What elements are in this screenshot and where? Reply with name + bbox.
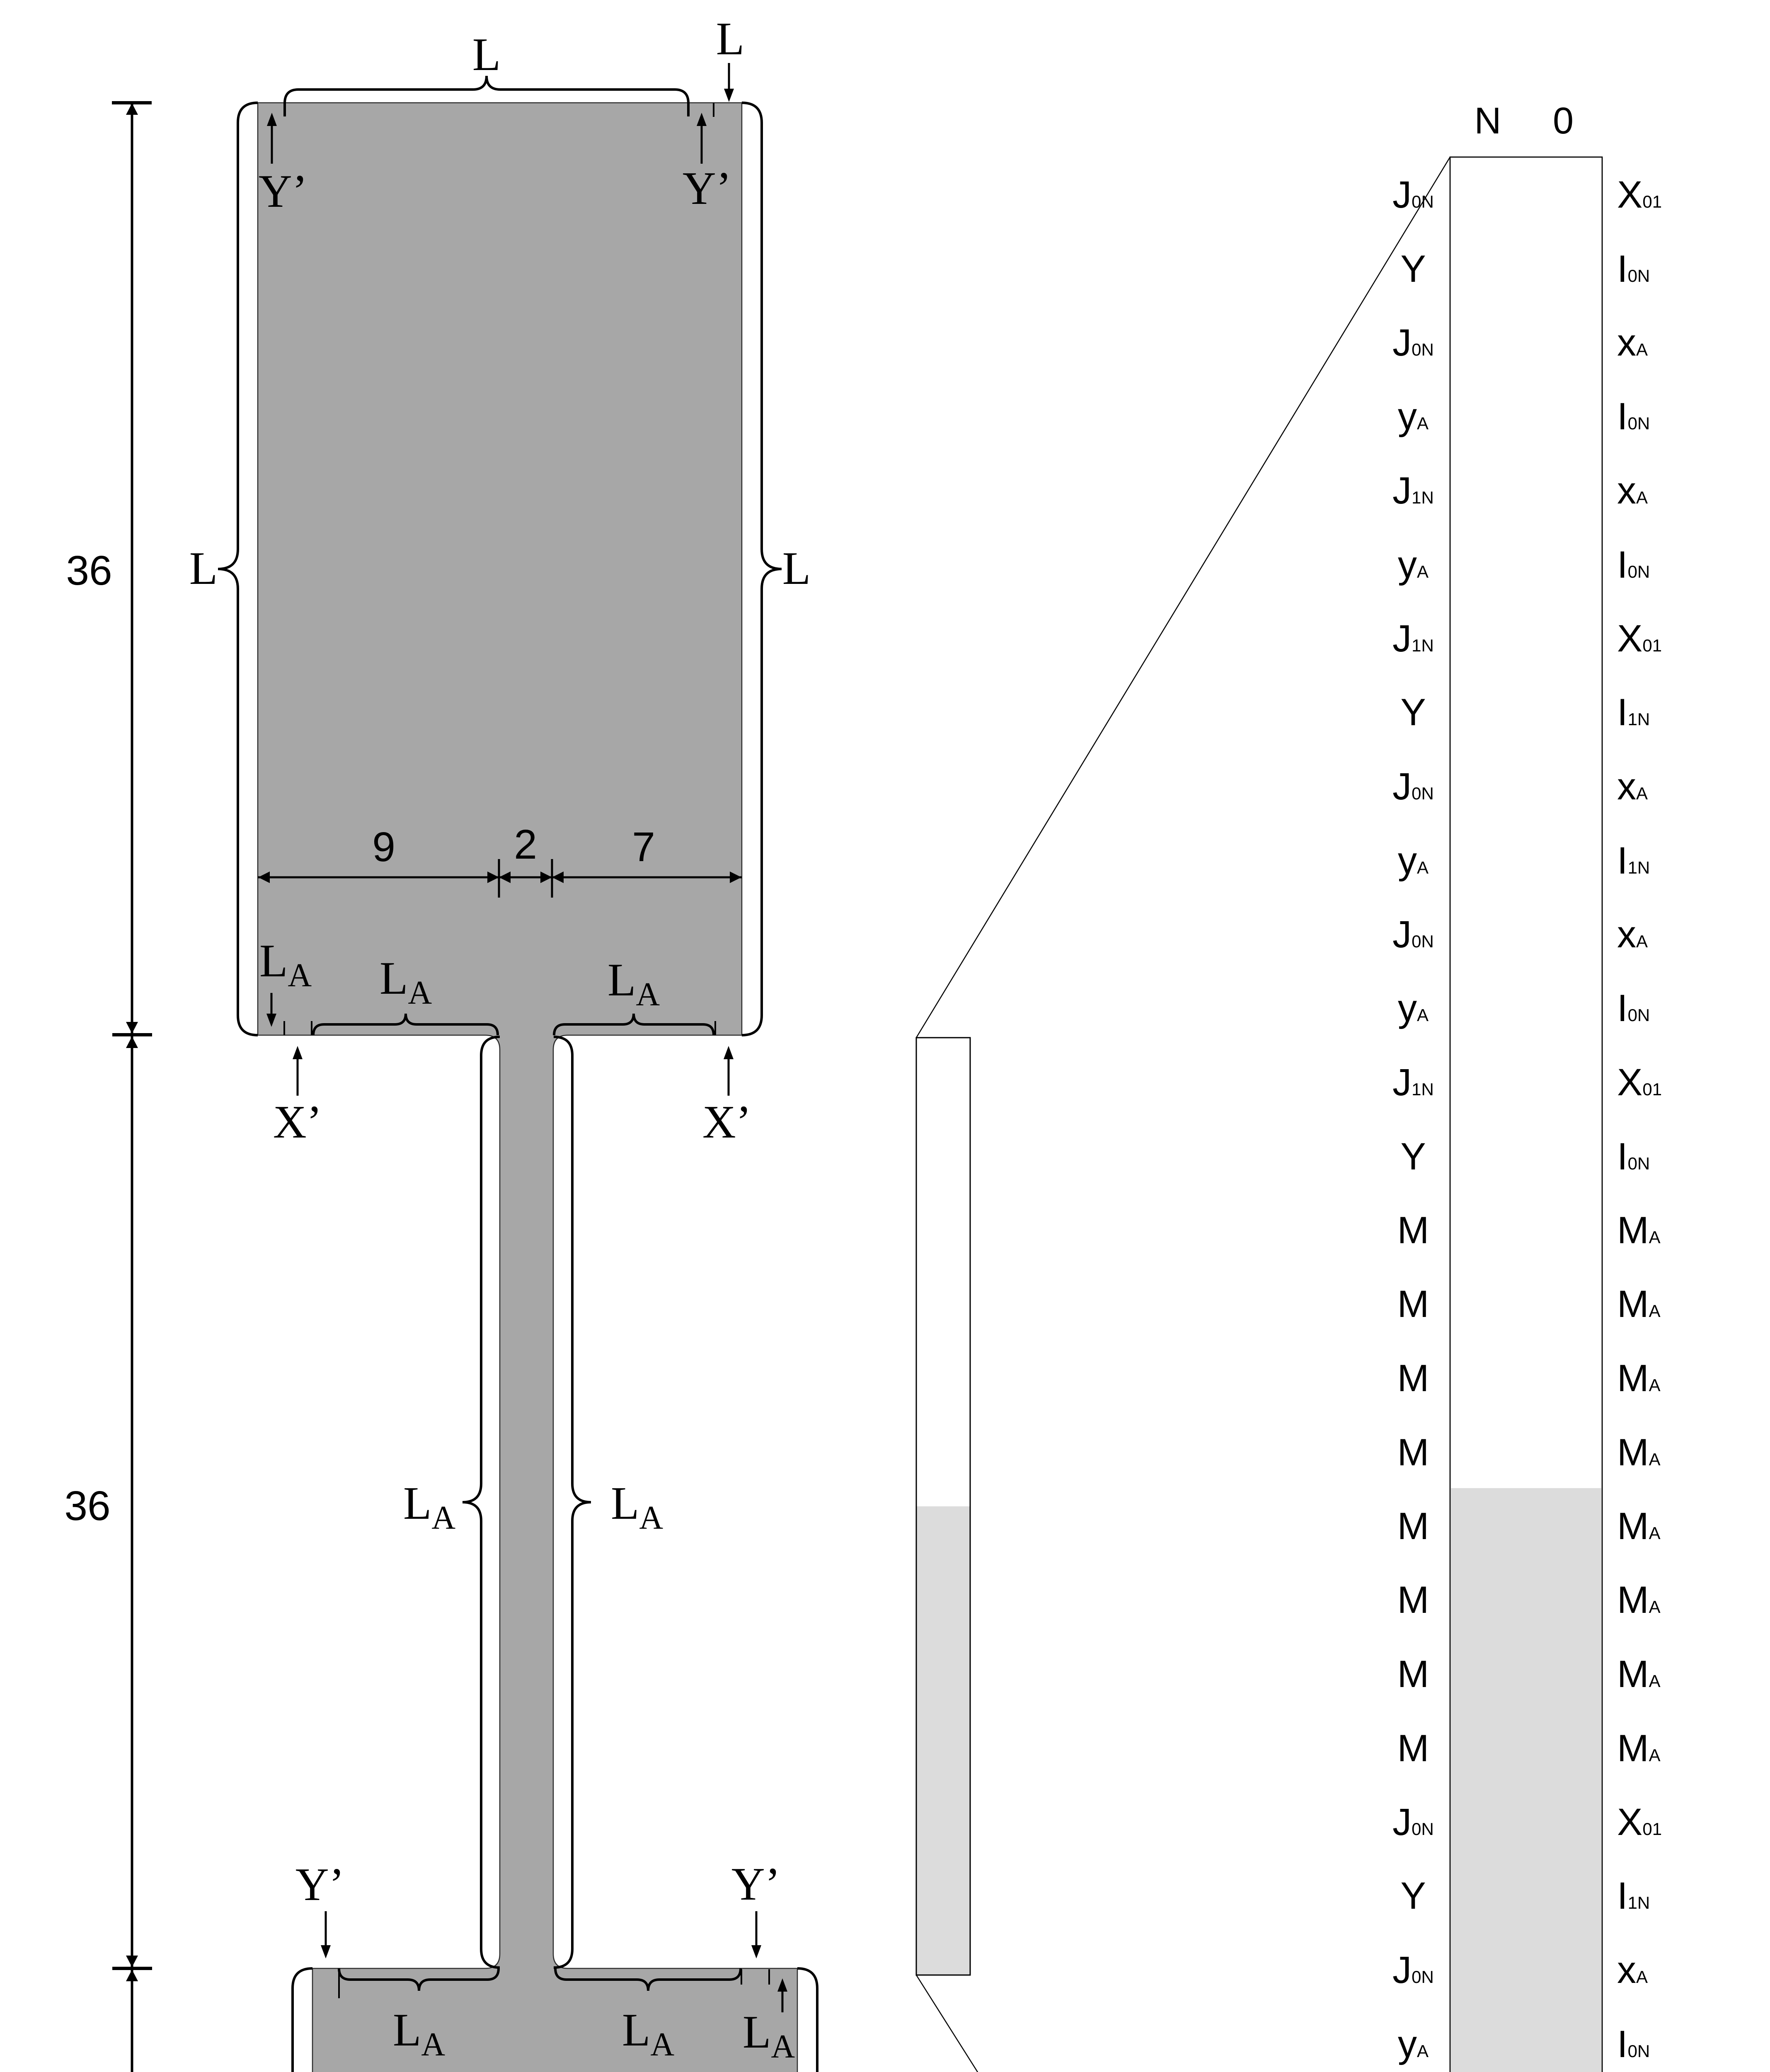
svg-text:I1N: I1N <box>1617 1875 1650 1917</box>
svg-text:J0N: J0N <box>1392 1949 1434 1991</box>
svg-text:Y’: Y’ <box>683 163 731 214</box>
svg-text:LA: LA <box>611 1478 663 1536</box>
svg-text:L: L <box>189 543 218 594</box>
svg-text:L: L <box>782 543 811 594</box>
svg-text:MA: MA <box>1617 1357 1661 1399</box>
svg-text:L: L <box>716 13 744 65</box>
svg-text:36: 36 <box>66 547 112 594</box>
svg-text:I0N: I0N <box>1617 2023 1650 2065</box>
svg-text:I0N: I0N <box>1617 1135 1650 1178</box>
svg-text:Y: Y <box>1400 1875 1426 1917</box>
svg-text:9: 9 <box>372 824 395 870</box>
svg-text:MA: MA <box>1617 1209 1661 1251</box>
svg-text:yA: yA <box>1398 2023 1429 2065</box>
svg-text:N: N <box>1475 100 1501 142</box>
svg-text:X01: X01 <box>1617 617 1662 660</box>
svg-text:36: 36 <box>64 1483 110 1529</box>
svg-text:MA: MA <box>1617 1283 1661 1325</box>
svg-text:MA: MA <box>1617 1653 1661 1695</box>
svg-text:Y’: Y’ <box>731 1859 780 1910</box>
svg-text:I0N: I0N <box>1617 987 1650 1029</box>
svg-text:yA: yA <box>1398 395 1429 438</box>
svg-text:J0N: J0N <box>1392 765 1434 808</box>
svg-text:X01: X01 <box>1617 1801 1662 1843</box>
svg-text:M: M <box>1397 1653 1429 1695</box>
svg-text:M: M <box>1397 1727 1429 1769</box>
svg-text:xA: xA <box>1617 322 1648 364</box>
svg-text:xA: xA <box>1617 470 1648 512</box>
svg-text:I1N: I1N <box>1617 691 1650 733</box>
svg-text:I0N: I0N <box>1617 248 1650 290</box>
svg-text:MA: MA <box>1617 1579 1661 1621</box>
svg-text:J1N: J1N <box>1392 1061 1434 1104</box>
svg-text:X01: X01 <box>1617 1061 1662 1104</box>
svg-text:Y’: Y’ <box>295 1859 344 1910</box>
svg-text:M: M <box>1397 1209 1429 1251</box>
svg-text:J0N: J0N <box>1392 322 1434 364</box>
svg-text:yA: yA <box>1398 544 1429 586</box>
svg-text:Y’: Y’ <box>259 166 308 217</box>
svg-text:LA: LA <box>403 1478 455 1536</box>
svg-text:X’: X’ <box>702 1097 751 1148</box>
svg-text:M: M <box>1397 1357 1429 1399</box>
svg-text:I1N: I1N <box>1617 840 1650 882</box>
svg-text:I0N: I0N <box>1617 395 1650 438</box>
svg-text:M: M <box>1397 1431 1429 1474</box>
svg-text:yA: yA <box>1398 840 1429 882</box>
svg-text:X01: X01 <box>1617 174 1662 216</box>
svg-text:I0N: I0N <box>1617 544 1650 586</box>
svg-text:2: 2 <box>514 821 537 868</box>
svg-text:0: 0 <box>1553 100 1574 142</box>
svg-text:J0N: J0N <box>1392 174 1434 216</box>
svg-text:7: 7 <box>632 824 655 870</box>
svg-text:xA: xA <box>1617 1949 1648 1991</box>
svg-text:xA: xA <box>1617 913 1648 956</box>
svg-text:xA: xA <box>1617 765 1648 808</box>
svg-text:Y: Y <box>1400 691 1426 733</box>
svg-text:L: L <box>472 29 501 80</box>
svg-text:MA: MA <box>1617 1505 1661 1547</box>
svg-text:M: M <box>1397 1283 1429 1325</box>
svg-text:J0N: J0N <box>1392 913 1434 956</box>
svg-text:MA: MA <box>1617 1431 1661 1474</box>
svg-text:M: M <box>1397 1505 1429 1547</box>
svg-text:X’: X’ <box>273 1097 322 1148</box>
svg-text:Y: Y <box>1400 1135 1426 1178</box>
svg-text:MA: MA <box>1617 1727 1661 1769</box>
svg-text:J0N: J0N <box>1392 1801 1434 1843</box>
svg-text:J1N: J1N <box>1392 617 1434 660</box>
svg-text:M: M <box>1397 1579 1429 1621</box>
svg-text:Y: Y <box>1400 248 1426 290</box>
svg-text:J1N: J1N <box>1392 470 1434 512</box>
svg-text:yA: yA <box>1398 987 1429 1029</box>
